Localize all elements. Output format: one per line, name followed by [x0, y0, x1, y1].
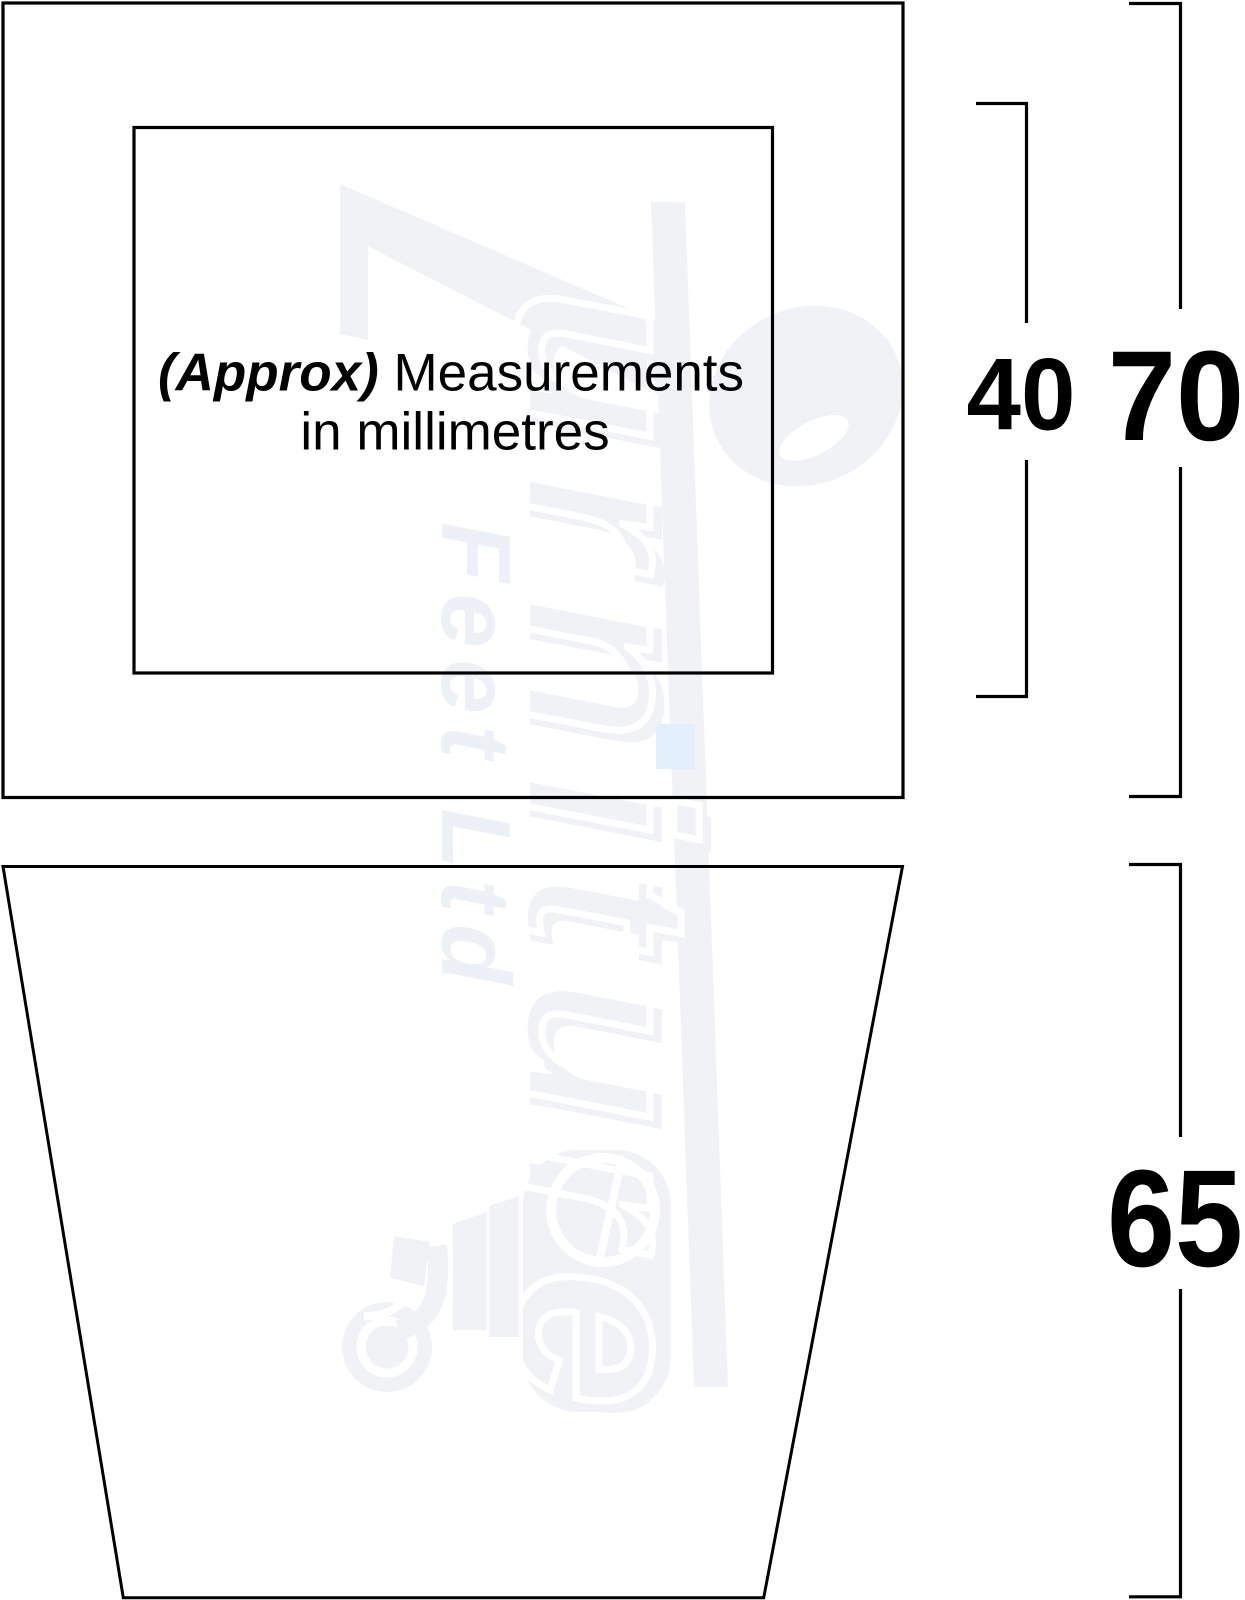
svg-text:(Approx) Measurements: (Approx) Measurements [158, 344, 744, 403]
svg-text:40: 40 [967, 338, 1076, 452]
svg-text:65: 65 [1107, 1141, 1243, 1296]
svg-text:70: 70 [1108, 323, 1244, 467]
svg-text:in millimetres: in millimetres [300, 403, 609, 462]
